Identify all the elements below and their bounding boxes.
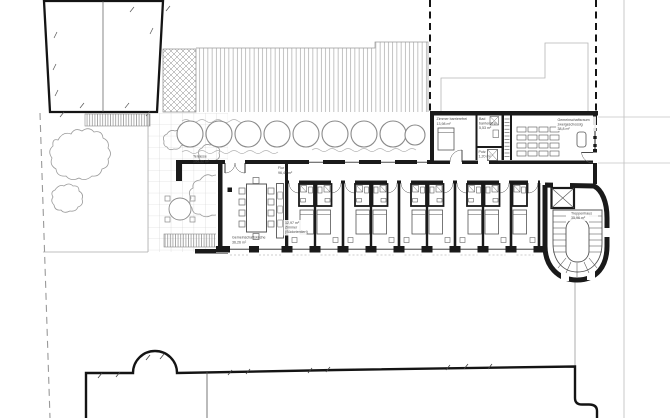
label-gemeinschaftsraum-name: Gemeinschaftsraum — [558, 118, 590, 122]
label-treppenhaus-area: 35,96 m² — [571, 216, 586, 220]
label-zimmer-bf-area: 13,98 m² — [437, 122, 452, 126]
pergola-roof-strip — [163, 42, 428, 112]
label-zimmer-sued-note: (Südorientiert) — [285, 230, 308, 234]
terrace-table — [169, 198, 191, 220]
property-boundary-dashed — [430, 0, 596, 113]
label-gemeinschaftsraum-name2: zweigeschossig — [558, 123, 583, 127]
label-terrasse-area: 195,32 m² — [193, 160, 210, 164]
label-kueche-area: 36,26 m² — [232, 241, 247, 245]
garden-vegetation — [50, 129, 111, 213]
neighbor-outline-northeast — [441, 43, 588, 112]
elevator — [552, 188, 575, 208]
label-zimmer-bf-name: Zimmer barrierefrei — [437, 117, 468, 121]
label-zimmer-sued-name: Zimmer — [285, 226, 298, 230]
label-kueche-name: Gemeinschaftsküche — [232, 236, 266, 240]
neighbor-building-north — [44, 1, 170, 117]
tree-icon — [177, 121, 425, 147]
stair-tower — [545, 181, 611, 281]
label-flur-name: Flur — [278, 166, 285, 170]
label-putz-area: 1,20 m² — [479, 155, 492, 159]
label-gemeinschaftsraum-area: 38,8 m² — [558, 127, 571, 131]
garden-steps — [85, 114, 150, 126]
label-flur-area: 96,47 m² — [278, 171, 293, 175]
terrace-steps — [164, 234, 224, 247]
floor-plan-canvas: Terrasse 195,32 m² Flur 96,47 m² Gemeins… — [0, 0, 670, 418]
floor-plan-page: Terrasse 195,32 m² Flur 96,47 m² Gemeins… — [0, 0, 670, 418]
neighbor-building-south — [86, 351, 597, 418]
label-bad-bf-name2: barrierefrei — [479, 122, 497, 126]
label-putz-name: Putz — [479, 150, 486, 154]
label-bad-bf-name: Bad — [479, 117, 485, 121]
label-terrasse-name: Terrasse — [193, 155, 207, 159]
label-zimmer-sued-area: 12,97 m² — [285, 221, 300, 225]
label-bad-bf-area: 5,53 m² — [479, 126, 492, 130]
label-treppenhaus-name: Treppenhaus — [571, 212, 592, 216]
